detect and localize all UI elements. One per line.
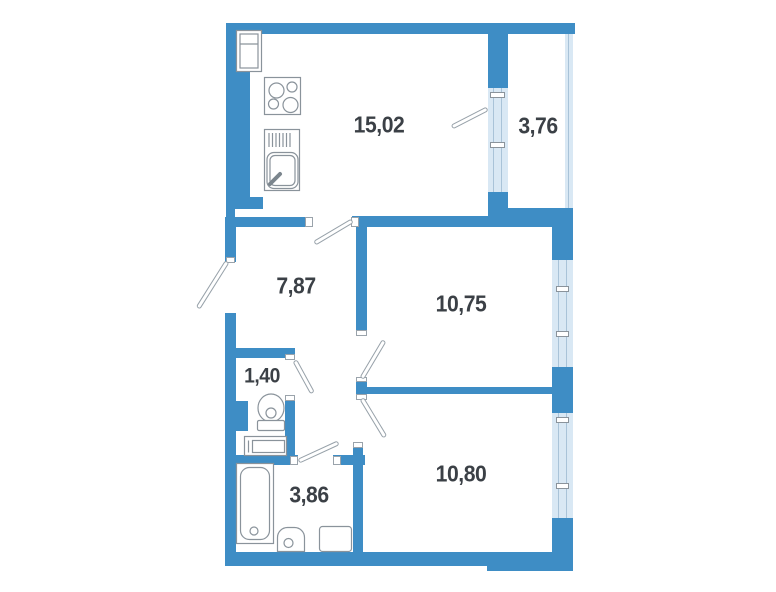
room-label-hallway: 7,87 [276,275,315,298]
washbasin-icon [245,437,287,456]
kitchen-door-icon [314,219,353,244]
room-label-wc: 1,40 [244,366,280,387]
kitchen-sink-icon [265,130,300,191]
room-label-bedroom-2: 10,80 [436,463,487,486]
entrance-door-icon [197,261,229,309]
balcony-door-icon [451,107,488,128]
wc-door-icon [293,360,314,393]
bathroom-door-icon [298,441,339,463]
fridge-icon [237,31,262,72]
bedroom-1-door-icon [360,340,385,379]
bathtub-icon [237,464,274,544]
room-label-balcony: 3,76 [518,115,557,138]
room-label-bedroom-1: 10,75 [436,293,487,316]
fixtures-layer [0,0,776,592]
floor-plan: 15,02 3,76 7,87 10,75 1,40 10,80 3,86 [0,0,776,592]
toilet-icon [278,528,305,552]
bedroom-2-door-icon [360,398,386,438]
room-label-kitchen-living: 15,02 [354,114,405,137]
room-label-bathroom: 3,86 [289,484,328,507]
washing-machine-icon [320,527,352,552]
stove-icon [265,78,301,115]
toilet-icon [258,394,285,431]
